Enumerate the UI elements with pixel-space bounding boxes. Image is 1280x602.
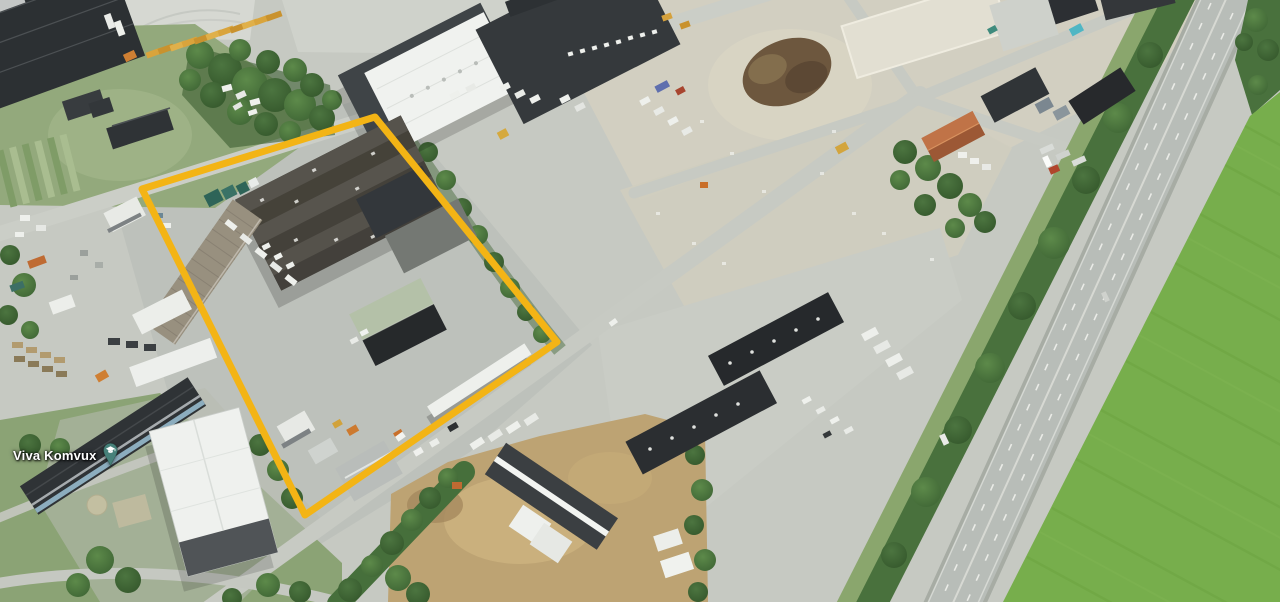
satellite-imagery[interactable]	[0, 0, 1280, 602]
education-pin-icon[interactable]	[103, 443, 118, 467]
place-label-text[interactable]: Viva Komvux	[13, 448, 97, 463]
place-label[interactable]: Viva Komvux	[13, 443, 118, 467]
map-viewport[interactable]: Viva Komvux	[0, 0, 1280, 602]
